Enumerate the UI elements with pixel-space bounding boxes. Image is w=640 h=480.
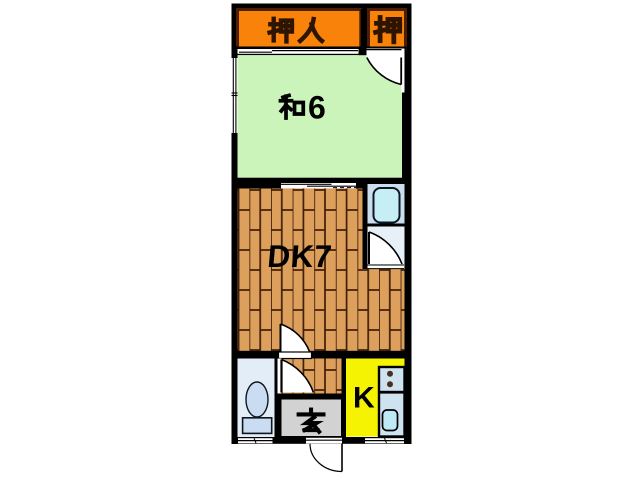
svg-text:6: 6 (308, 90, 326, 126)
svg-text:DK7: DK7 (266, 238, 334, 274)
svg-text:K: K (353, 382, 375, 415)
